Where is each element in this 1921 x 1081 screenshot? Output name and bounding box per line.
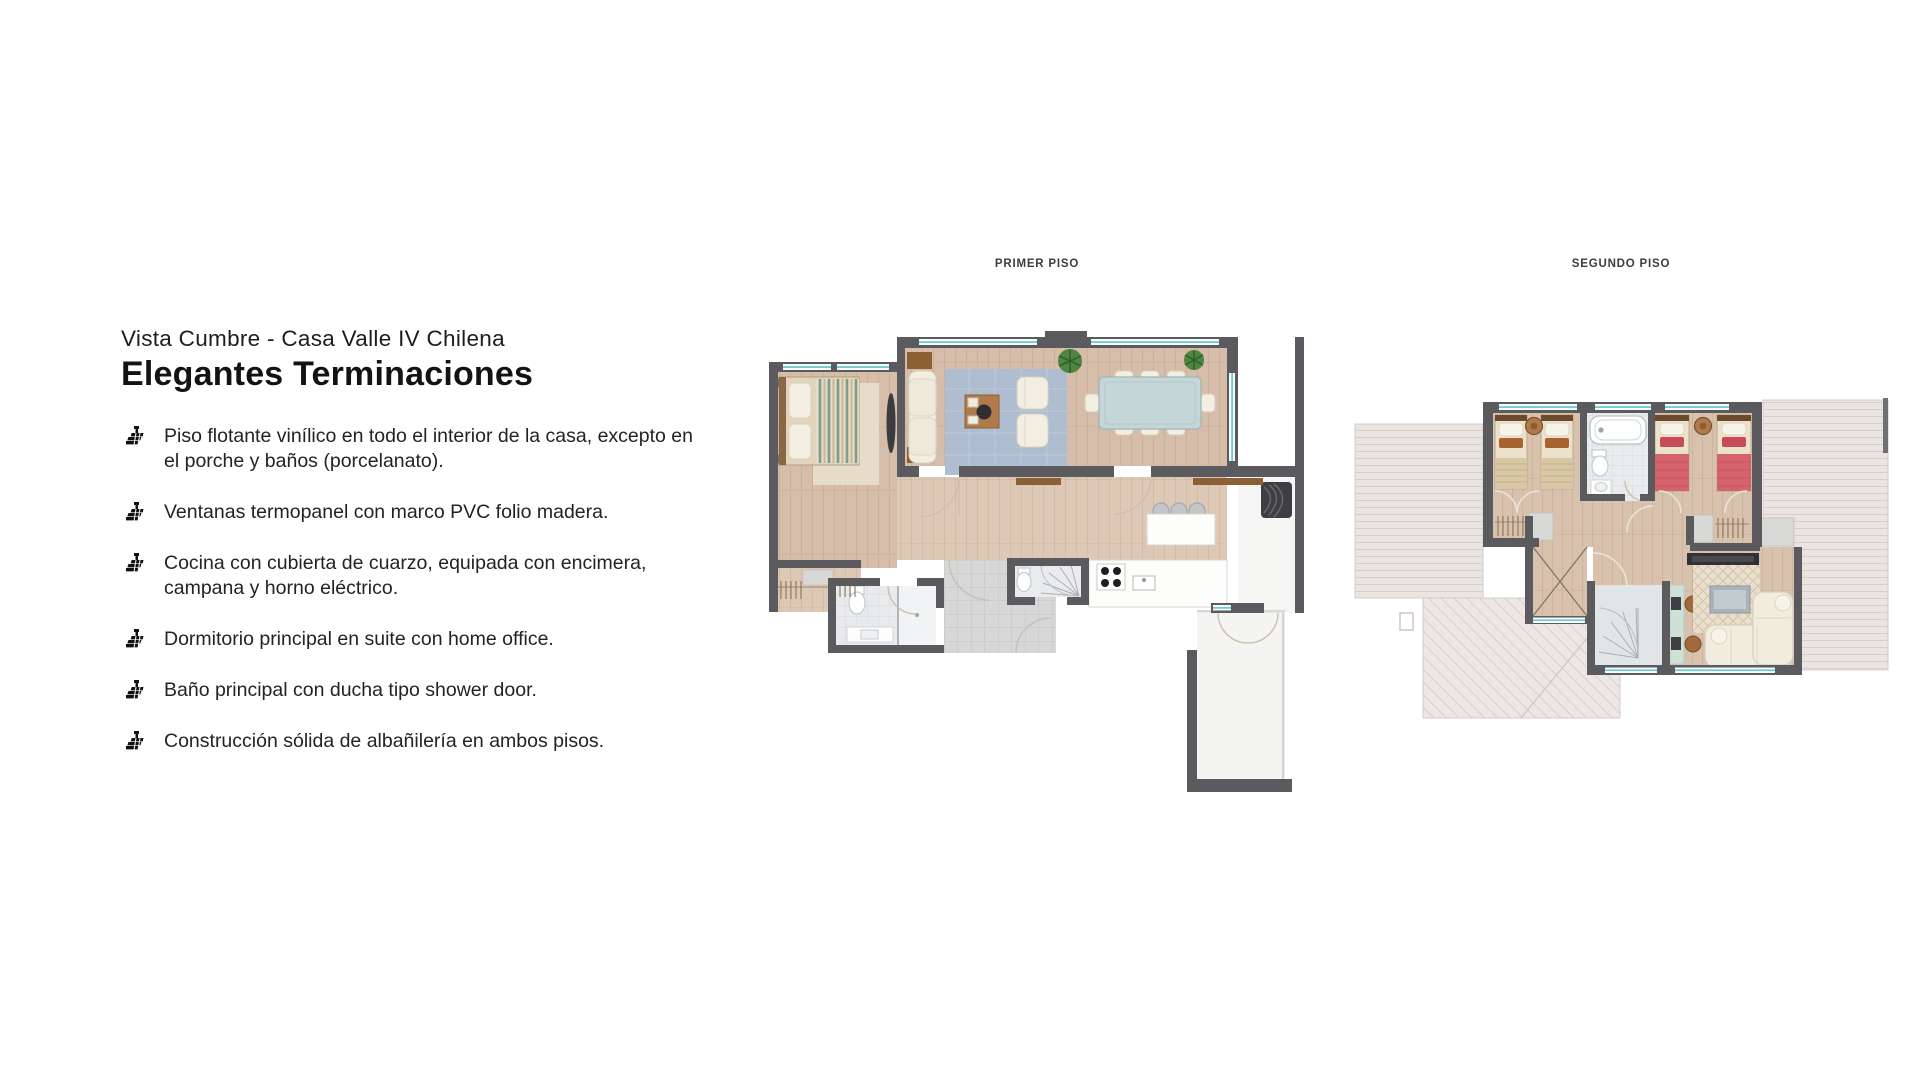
feature-text: Ventanas termopanel con marco PVC folio … xyxy=(164,500,608,525)
feature-list: Piso flotante vinílico en todo el interi… xyxy=(126,424,701,780)
bed xyxy=(1655,415,1689,491)
plant-icon xyxy=(1058,349,1082,373)
feature-text: Baño principal con ducha tipo shower doo… xyxy=(164,678,537,703)
second-floor-label: SEGUNDO PISO xyxy=(1511,258,1731,270)
brick-floor-icon xyxy=(126,553,147,573)
bed xyxy=(1495,415,1527,489)
bed xyxy=(1717,415,1751,491)
second-floor-plan xyxy=(1353,396,1893,726)
brick-floor-icon xyxy=(126,426,147,446)
brick-floor-icon xyxy=(126,502,147,522)
page-title: Elegantes Terminaciones xyxy=(121,355,721,394)
bathroom xyxy=(836,586,936,645)
feature-text: Dormitorio principal en suite con home o… xyxy=(164,627,554,652)
list-item: Cocina con cubierta de cuarzo, equipada … xyxy=(126,551,701,601)
project-subtitle: Vista Cumbre - Casa Valle IV Chilena xyxy=(121,326,721,352)
first-floor-plan xyxy=(769,331,1304,796)
list-item: Dormitorio principal en suite con home o… xyxy=(126,627,701,652)
feature-text: Cocina con cubierta de cuarzo, equipada … xyxy=(164,551,701,601)
first-floor-label: PRIMER PISO xyxy=(927,258,1147,270)
feature-text: Construcción sólida de albañilería en am… xyxy=(164,729,604,754)
console-table xyxy=(1193,478,1263,485)
stairs-wc xyxy=(1015,565,1081,597)
intro-block: Vista Cumbre - Casa Valle IV Chilena Ele… xyxy=(121,326,721,394)
list-item: Construcción sólida de albañilería en am… xyxy=(126,729,701,754)
plant-icon xyxy=(1184,350,1204,370)
brochure-page: Vista Cumbre - Casa Valle IV Chilena Ele… xyxy=(0,0,1921,1081)
brick-floor-icon xyxy=(126,629,147,649)
list-item: Baño principal con ducha tipo shower doo… xyxy=(126,678,701,703)
brick-floor-icon xyxy=(126,680,147,700)
list-item: Piso flotante vinílico en todo el interi… xyxy=(126,424,701,474)
list-item: Ventanas termopanel con marco PVC folio … xyxy=(126,500,701,525)
feature-text: Piso flotante vinílico en todo el interi… xyxy=(164,424,701,474)
bed xyxy=(1541,415,1573,489)
brick-floor-icon xyxy=(126,731,147,751)
console-table xyxy=(1016,478,1061,485)
